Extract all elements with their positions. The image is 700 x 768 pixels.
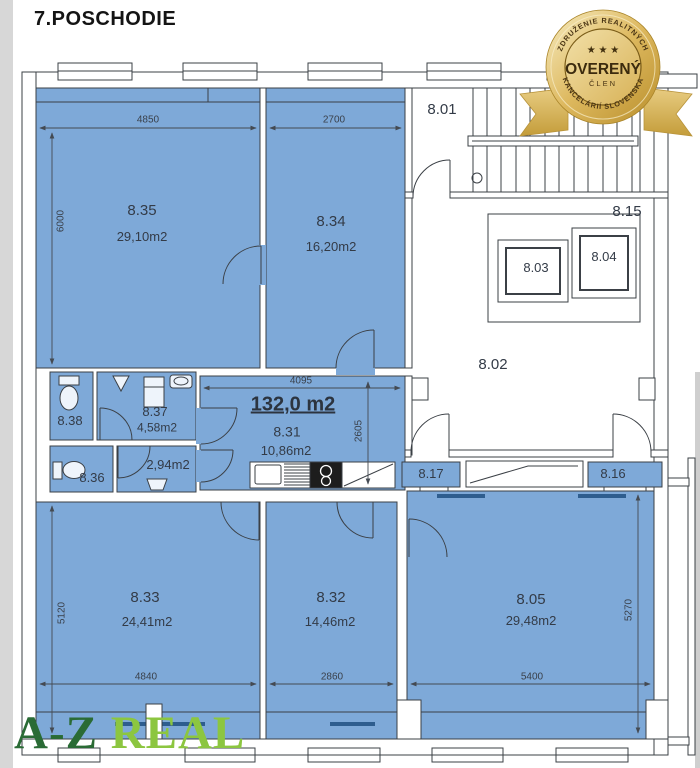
room-label-8-04: 8.04 bbox=[591, 250, 616, 264]
room-label-8-01: 8.01 bbox=[427, 102, 456, 119]
room-area-8-32: 14,46m2 bbox=[305, 615, 356, 629]
logo-part-real: REAL bbox=[111, 707, 246, 759]
logo-part-az: A-Z bbox=[14, 707, 98, 759]
dim-5400: 5400 bbox=[521, 672, 543, 683]
dim-4850: 4850 bbox=[137, 115, 159, 126]
kitchen-unit bbox=[250, 462, 395, 488]
room-area-8-35: 29,10m2 bbox=[117, 230, 168, 244]
basin-icon bbox=[147, 479, 167, 490]
elevator-shafts bbox=[488, 214, 640, 322]
badge-stars: ★ ★ ★ bbox=[587, 45, 619, 56]
room-label-8-37: 8.37 bbox=[142, 405, 167, 419]
badge-title: OVERENÝ bbox=[565, 60, 641, 78]
room-area-8-33: 24,41m2 bbox=[122, 615, 173, 629]
room-label-8-05: 8.05 bbox=[516, 592, 545, 609]
room-label-8-17: 8.17 bbox=[418, 467, 443, 481]
floorplan-page: 7.POSCHODIE 8.35 29,10m2 8.34 16,20m2 13… bbox=[0, 0, 700, 768]
room-label-8-03: 8.03 bbox=[523, 261, 548, 275]
dim-2860: 2860 bbox=[321, 672, 343, 683]
room-label-8-15: 8.15 bbox=[612, 204, 641, 221]
dim-4095: 4095 bbox=[290, 376, 312, 387]
room-fills bbox=[36, 88, 662, 739]
room-area-8-37: 4,58m2 bbox=[137, 421, 177, 434]
room-label-8-16: 8.16 bbox=[600, 467, 625, 481]
room-label-8-32: 8.32 bbox=[316, 590, 345, 607]
room-label-8-33: 8.33 bbox=[130, 590, 159, 607]
room-area-8-05: 29,48m2 bbox=[506, 614, 557, 628]
dim-2605: 2605 bbox=[354, 420, 365, 442]
shower-column bbox=[144, 377, 164, 407]
dim-5270: 5270 bbox=[624, 599, 635, 621]
total-area-label: 132,0 m2 bbox=[251, 394, 336, 417]
dim-2700: 2700 bbox=[323, 115, 345, 126]
toilet-icon bbox=[60, 386, 78, 410]
room-label-8-31: 8.31 bbox=[273, 424, 300, 439]
plan-linework bbox=[22, 63, 697, 762]
room-label-8-35: 8.35 bbox=[127, 203, 156, 220]
verified-member-badge: ZDRUŽENIE REALITNÝCH KANCELÁRIÍ SLOVENSK… bbox=[512, 0, 700, 140]
dim-6000: 6000 bbox=[56, 210, 67, 232]
room-label-8-34: 8.34 bbox=[316, 214, 345, 231]
toilet-tank bbox=[53, 462, 62, 479]
badge-subtitle: ČLEN bbox=[589, 79, 617, 88]
toilet-tank bbox=[59, 376, 79, 385]
room-label-8-36: 8.36 bbox=[79, 471, 104, 485]
room-label-8-38: 8.38 bbox=[57, 414, 82, 428]
room-area-8-31: 10,86m2 bbox=[261, 444, 312, 458]
room-area-8-34: 16,20m2 bbox=[306, 240, 357, 254]
agency-logo: A-Z REAL bbox=[14, 706, 245, 760]
dim-4840: 4840 bbox=[135, 672, 157, 683]
dim-5120: 5120 bbox=[57, 602, 68, 624]
room-area-2-94: 2,94m2 bbox=[146, 458, 189, 472]
page-title: 7.POSCHODIE bbox=[34, 8, 176, 31]
room-label-8-02: 8.02 bbox=[478, 357, 507, 374]
